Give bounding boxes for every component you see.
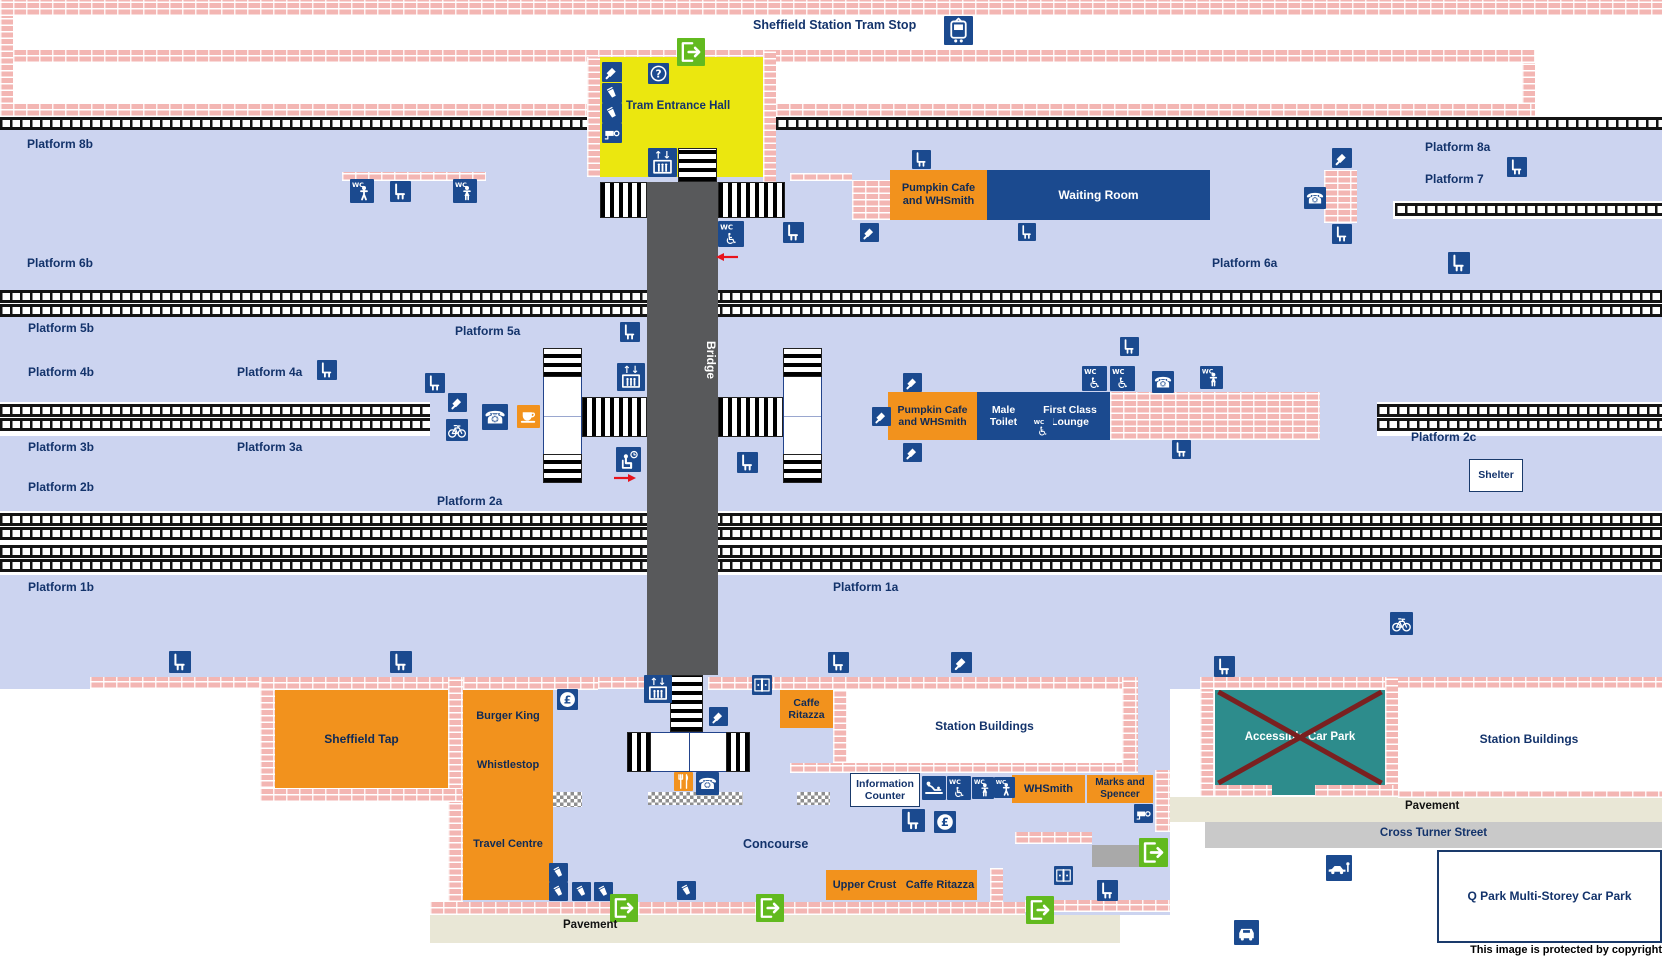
sheffield-tap: Sheffield Tap — [275, 690, 448, 788]
exit-icon — [1026, 896, 1054, 924]
map-label: Platform 2c — [1411, 430, 1476, 444]
accessible-toilet-icon: WC♿ — [718, 221, 744, 247]
map-label: Platform 7 — [1425, 172, 1484, 186]
vending-machine-icon — [602, 103, 622, 123]
accessible-car-park: Accessible Car Park — [1215, 690, 1385, 785]
cctv-icon — [602, 123, 622, 143]
ticket-gates-icon — [752, 675, 772, 695]
station-buildings-east: Station Buildings — [1398, 689, 1660, 790]
brick-wall — [1385, 677, 1398, 797]
waiting-room: Waiting Room — [987, 170, 1210, 220]
seat-icon — [1507, 157, 1527, 177]
whsmith: WHSmith — [1012, 775, 1085, 803]
brick-wall — [763, 50, 776, 183]
railway-track — [776, 117, 1662, 130]
ticket-gates-icon — [1054, 866, 1073, 885]
caffe-ritazza-south: Caffe Ritazza — [903, 870, 977, 900]
seat-icon — [1332, 224, 1352, 244]
brick-wall — [1122, 677, 1138, 773]
stairs — [718, 397, 783, 437]
brick-wall — [1324, 170, 1357, 223]
map-label: This image is protected by copyright — [1270, 944, 1662, 956]
currency-exchange-icon: £ — [557, 689, 578, 710]
bridge: Bridge — [647, 182, 718, 675]
burger-king-label: Burger King — [476, 710, 540, 723]
map-label: Pavement — [1405, 800, 1459, 812]
telephone-icon: ☎ — [696, 772, 719, 795]
svg-text:☎: ☎ — [484, 409, 506, 429]
map-label: Platform 4a — [237, 365, 302, 379]
map-label: Platform 5a — [455, 324, 520, 338]
accessible-toilet-icon: WC♿ — [1032, 417, 1053, 438]
ticket-machine-icon — [872, 407, 891, 426]
lift-icon: ↑↓ — [617, 363, 645, 391]
brick-wall — [852, 180, 890, 220]
map-label: Platform 2b — [28, 480, 94, 494]
railway-track — [0, 559, 1662, 572]
exit-icon — [610, 894, 638, 922]
map-label: Platform 6a — [1212, 256, 1277, 270]
svg-text:♿: ♿ — [1037, 424, 1048, 438]
seat-icon — [620, 322, 640, 342]
stairs — [718, 182, 785, 218]
brick-wall — [90, 677, 285, 689]
ticket-machine-icon — [951, 652, 972, 673]
svg-text:☎: ☎ — [1154, 375, 1172, 392]
whsmith-label: WHSmith — [1024, 783, 1073, 796]
railway-track — [0, 527, 1662, 540]
railway-track — [0, 304, 1662, 317]
cycle-storage-icon — [1390, 612, 1413, 635]
brick-wall — [1200, 677, 1662, 689]
stairs — [600, 182, 647, 218]
station-buildings-east-label: Station Buildings — [1480, 732, 1579, 746]
vending-machine-icon — [602, 83, 622, 103]
brick-wall — [1314, 785, 1398, 797]
brick-wall — [1110, 392, 1320, 440]
seat-icon — [169, 651, 191, 673]
svg-text:☎: ☎ — [1306, 191, 1324, 208]
svg-text:£: £ — [941, 815, 949, 829]
vending-machine-icon — [572, 882, 591, 901]
svg-text:♿: ♿ — [953, 785, 966, 800]
currency-exchange-icon: £ — [934, 811, 956, 833]
q-park: Q Park Multi-Storey Car Park — [1437, 850, 1662, 943]
female-toilet-icon: WC — [972, 777, 994, 799]
travel-centre-label: Travel Centre — [473, 838, 543, 851]
upper-crust: Upper Crust — [826, 870, 903, 900]
brick-wall — [260, 677, 463, 690]
male-toilet-icon: WC — [994, 777, 1015, 798]
map-label: Pavement — [563, 919, 617, 931]
railway-track — [0, 513, 1662, 526]
ticket-machine-icon — [448, 393, 467, 412]
map-label: Platform 4b — [28, 365, 94, 379]
restaurant-icon — [674, 772, 693, 791]
stairs — [582, 397, 647, 437]
ticket-machine-icon — [602, 62, 622, 82]
stair-tower-east — [783, 348, 822, 483]
bridge-label: Bridge — [647, 330, 718, 390]
station-buildings-west-label: Station Buildings — [935, 719, 1034, 733]
brick-wall — [833, 690, 847, 763]
information-counter-label: Information Counter — [856, 778, 914, 803]
ticket-machine-icon — [860, 223, 879, 242]
lift-icon: ↑↓ — [644, 675, 672, 703]
upper-crust-label: Upper Crust — [833, 879, 897, 892]
marks-and-spencer: Marks and Spencer — [1087, 775, 1153, 803]
brick-wall — [0, 16, 13, 117]
svg-text:?: ? — [655, 68, 661, 80]
shelter: Shelter — [1469, 459, 1523, 492]
railway-track — [0, 418, 430, 431]
seat-icon — [902, 809, 925, 832]
brick-wall — [780, 677, 1122, 690]
exit-icon — [756, 894, 784, 922]
drop-off-icon — [1326, 855, 1352, 881]
svg-text:↑↓: ↑↓ — [650, 677, 667, 688]
railway-track — [1395, 203, 1662, 216]
caffe-ritazza-south-label: Caffe Ritazza — [906, 879, 974, 892]
svg-text:♿: ♿ — [1088, 375, 1101, 391]
map-label: Platform 2a — [437, 494, 502, 508]
svg-text:£: £ — [564, 694, 572, 707]
seat-icon — [912, 150, 931, 169]
q-park-label: Q Park Multi-Storey Car Park — [1467, 889, 1631, 903]
tram-icon — [944, 16, 973, 45]
shelter-label: Shelter — [1478, 469, 1514, 481]
caffe-ritazza-north: Caffe Ritazza — [780, 690, 833, 728]
help-point-icon: ? — [648, 63, 669, 84]
seat-icon — [390, 651, 412, 673]
female-toilet-icon: WC — [1200, 366, 1223, 389]
vending-machine-icon — [677, 881, 696, 900]
seat-icon — [425, 373, 445, 393]
walkway-mark — [553, 792, 582, 807]
brick-wall — [1155, 770, 1170, 832]
whistlestop: Whistlestop — [463, 742, 553, 788]
map-label: Platform 3b — [28, 440, 94, 454]
vending-machine-icon — [549, 882, 568, 901]
baby-change-icon — [922, 776, 946, 800]
seat-icon — [1172, 440, 1191, 459]
brick-wall — [1015, 832, 1092, 844]
tram-entrance-hall-label: Tram Entrance Hall — [626, 100, 730, 112]
lift-icon: ↑↓ — [648, 148, 677, 177]
vending-machine-icon — [549, 863, 568, 882]
direction-arrow-right — [612, 470, 638, 480]
pumpkin-cafe-mid: Pumpkin Cafe and WHSmith — [888, 392, 977, 440]
marks-and-spencer-label: Marks and Spencer — [1095, 777, 1144, 801]
svg-text:↑↓: ↑↓ — [654, 149, 671, 161]
pumpkin-cafe-north-label: Pumpkin Cafe and WHSmith — [902, 182, 975, 208]
brick-wall — [1214, 785, 1272, 797]
map-label: Concourse — [743, 837, 808, 851]
seat-icon — [1097, 880, 1118, 901]
ticket-machine-icon — [1332, 148, 1352, 168]
concourse-stairs — [627, 732, 750, 772]
accessible-toilet-icon: WC♿ — [1082, 366, 1107, 391]
male-toilet: Male Toilet — [977, 392, 1030, 440]
sheffield-station-map: Tram Entrance HallBridgePumpkin Cafe and… — [0, 0, 1662, 962]
railway-track — [0, 290, 1662, 303]
cycle-storage-icon — [446, 419, 468, 441]
railway-track — [1377, 404, 1662, 417]
brick-wall — [598, 677, 647, 689]
brick-wall — [1200, 689, 1214, 797]
direction-arrow-left — [714, 249, 740, 259]
svg-text:♿: ♿ — [725, 230, 739, 247]
brick-wall — [260, 788, 462, 802]
pumpkin-cafe-mid-label: Pumpkin Cafe and WHSmith — [897, 404, 967, 429]
seat-icon — [783, 222, 804, 243]
railway-track — [0, 545, 1662, 558]
sheffield-tap-label: Sheffield Tap — [324, 732, 398, 746]
telephone-icon: ☎ — [1152, 371, 1174, 393]
walkway-mark — [797, 792, 830, 805]
female-toilet-icon: WC — [453, 179, 477, 203]
seat-icon — [1448, 252, 1470, 274]
map-label: Platform 3a — [237, 440, 302, 454]
stairs — [670, 675, 703, 732]
seat-icon — [737, 452, 758, 473]
map-label: Sheffield Station Tram Stop — [753, 18, 916, 32]
waiting-room-label: Waiting Room — [1058, 188, 1138, 202]
seat-icon — [1018, 223, 1036, 241]
brick-wall — [790, 173, 852, 181]
pumpkin-cafe-north: Pumpkin Cafe and WHSmith — [890, 170, 987, 220]
seat-icon — [828, 652, 849, 673]
ticket-machine-icon — [903, 373, 922, 392]
seat-icon — [1214, 656, 1235, 677]
ticket-machine-icon — [903, 443, 922, 462]
brick-wall — [776, 104, 1535, 117]
exit-corridor — [1092, 845, 1140, 867]
exit-icon — [677, 38, 705, 66]
map-label: Platform 8b — [27, 137, 93, 151]
accessible-toilet-icon: WC♿ — [947, 776, 971, 800]
travel-centre: Travel Centre — [463, 788, 553, 900]
seat-icon — [390, 181, 411, 202]
taxi-icon — [1234, 920, 1259, 945]
accessible-toilet-icon: WC♿ — [1110, 366, 1135, 391]
accessible-car-park-notch — [1272, 785, 1315, 795]
brick-wall — [587, 57, 600, 177]
svg-text:♿: ♿ — [1116, 375, 1129, 391]
svg-text:☎: ☎ — [698, 775, 717, 793]
ticket-machine-icon — [709, 707, 728, 726]
taxi-area — [1235, 848, 1408, 943]
map-label: Platform 6b — [27, 256, 93, 270]
information-counter: Information Counter — [850, 773, 920, 807]
railway-track — [0, 117, 587, 130]
cctv-icon — [1134, 804, 1153, 823]
map-label: Platform 8a — [1425, 140, 1490, 154]
brick-wall — [0, 0, 1662, 16]
cafe-icon — [517, 405, 540, 428]
brick-wall — [790, 763, 1122, 773]
stairs — [678, 148, 717, 182]
map-label: Cross Turner Street — [1205, 827, 1662, 839]
svg-text:↑↓: ↑↓ — [623, 365, 640, 376]
stair-tower-west — [543, 348, 582, 483]
waiting-area-icon — [616, 447, 641, 472]
male-toilet-label: Male Toilet — [990, 404, 1017, 429]
map-label: Platform 1a — [833, 580, 898, 594]
telephone-icon: ☎ — [482, 404, 508, 430]
caffe-ritazza-north-label: Caffe Ritazza — [788, 697, 824, 722]
brick-wall — [990, 868, 1003, 902]
brick-wall — [1398, 790, 1662, 798]
map-label: Platform 1b — [28, 580, 94, 594]
brick-wall — [430, 902, 1025, 915]
station-buildings-west: Station Buildings — [847, 690, 1122, 763]
whistlestop-label: Whistlestop — [477, 759, 539, 772]
burger-king: Burger King — [463, 690, 553, 742]
seat-icon — [1120, 337, 1139, 356]
male-toilet-icon: WC — [350, 179, 374, 203]
exit-icon — [1139, 838, 1168, 867]
brick-wall — [260, 690, 275, 788]
brick-wall — [13, 104, 587, 117]
telephone-icon: ☎ — [1304, 187, 1326, 209]
map-label: Platform 5b — [28, 321, 94, 335]
railway-track — [0, 404, 430, 417]
seat-icon — [317, 360, 337, 380]
